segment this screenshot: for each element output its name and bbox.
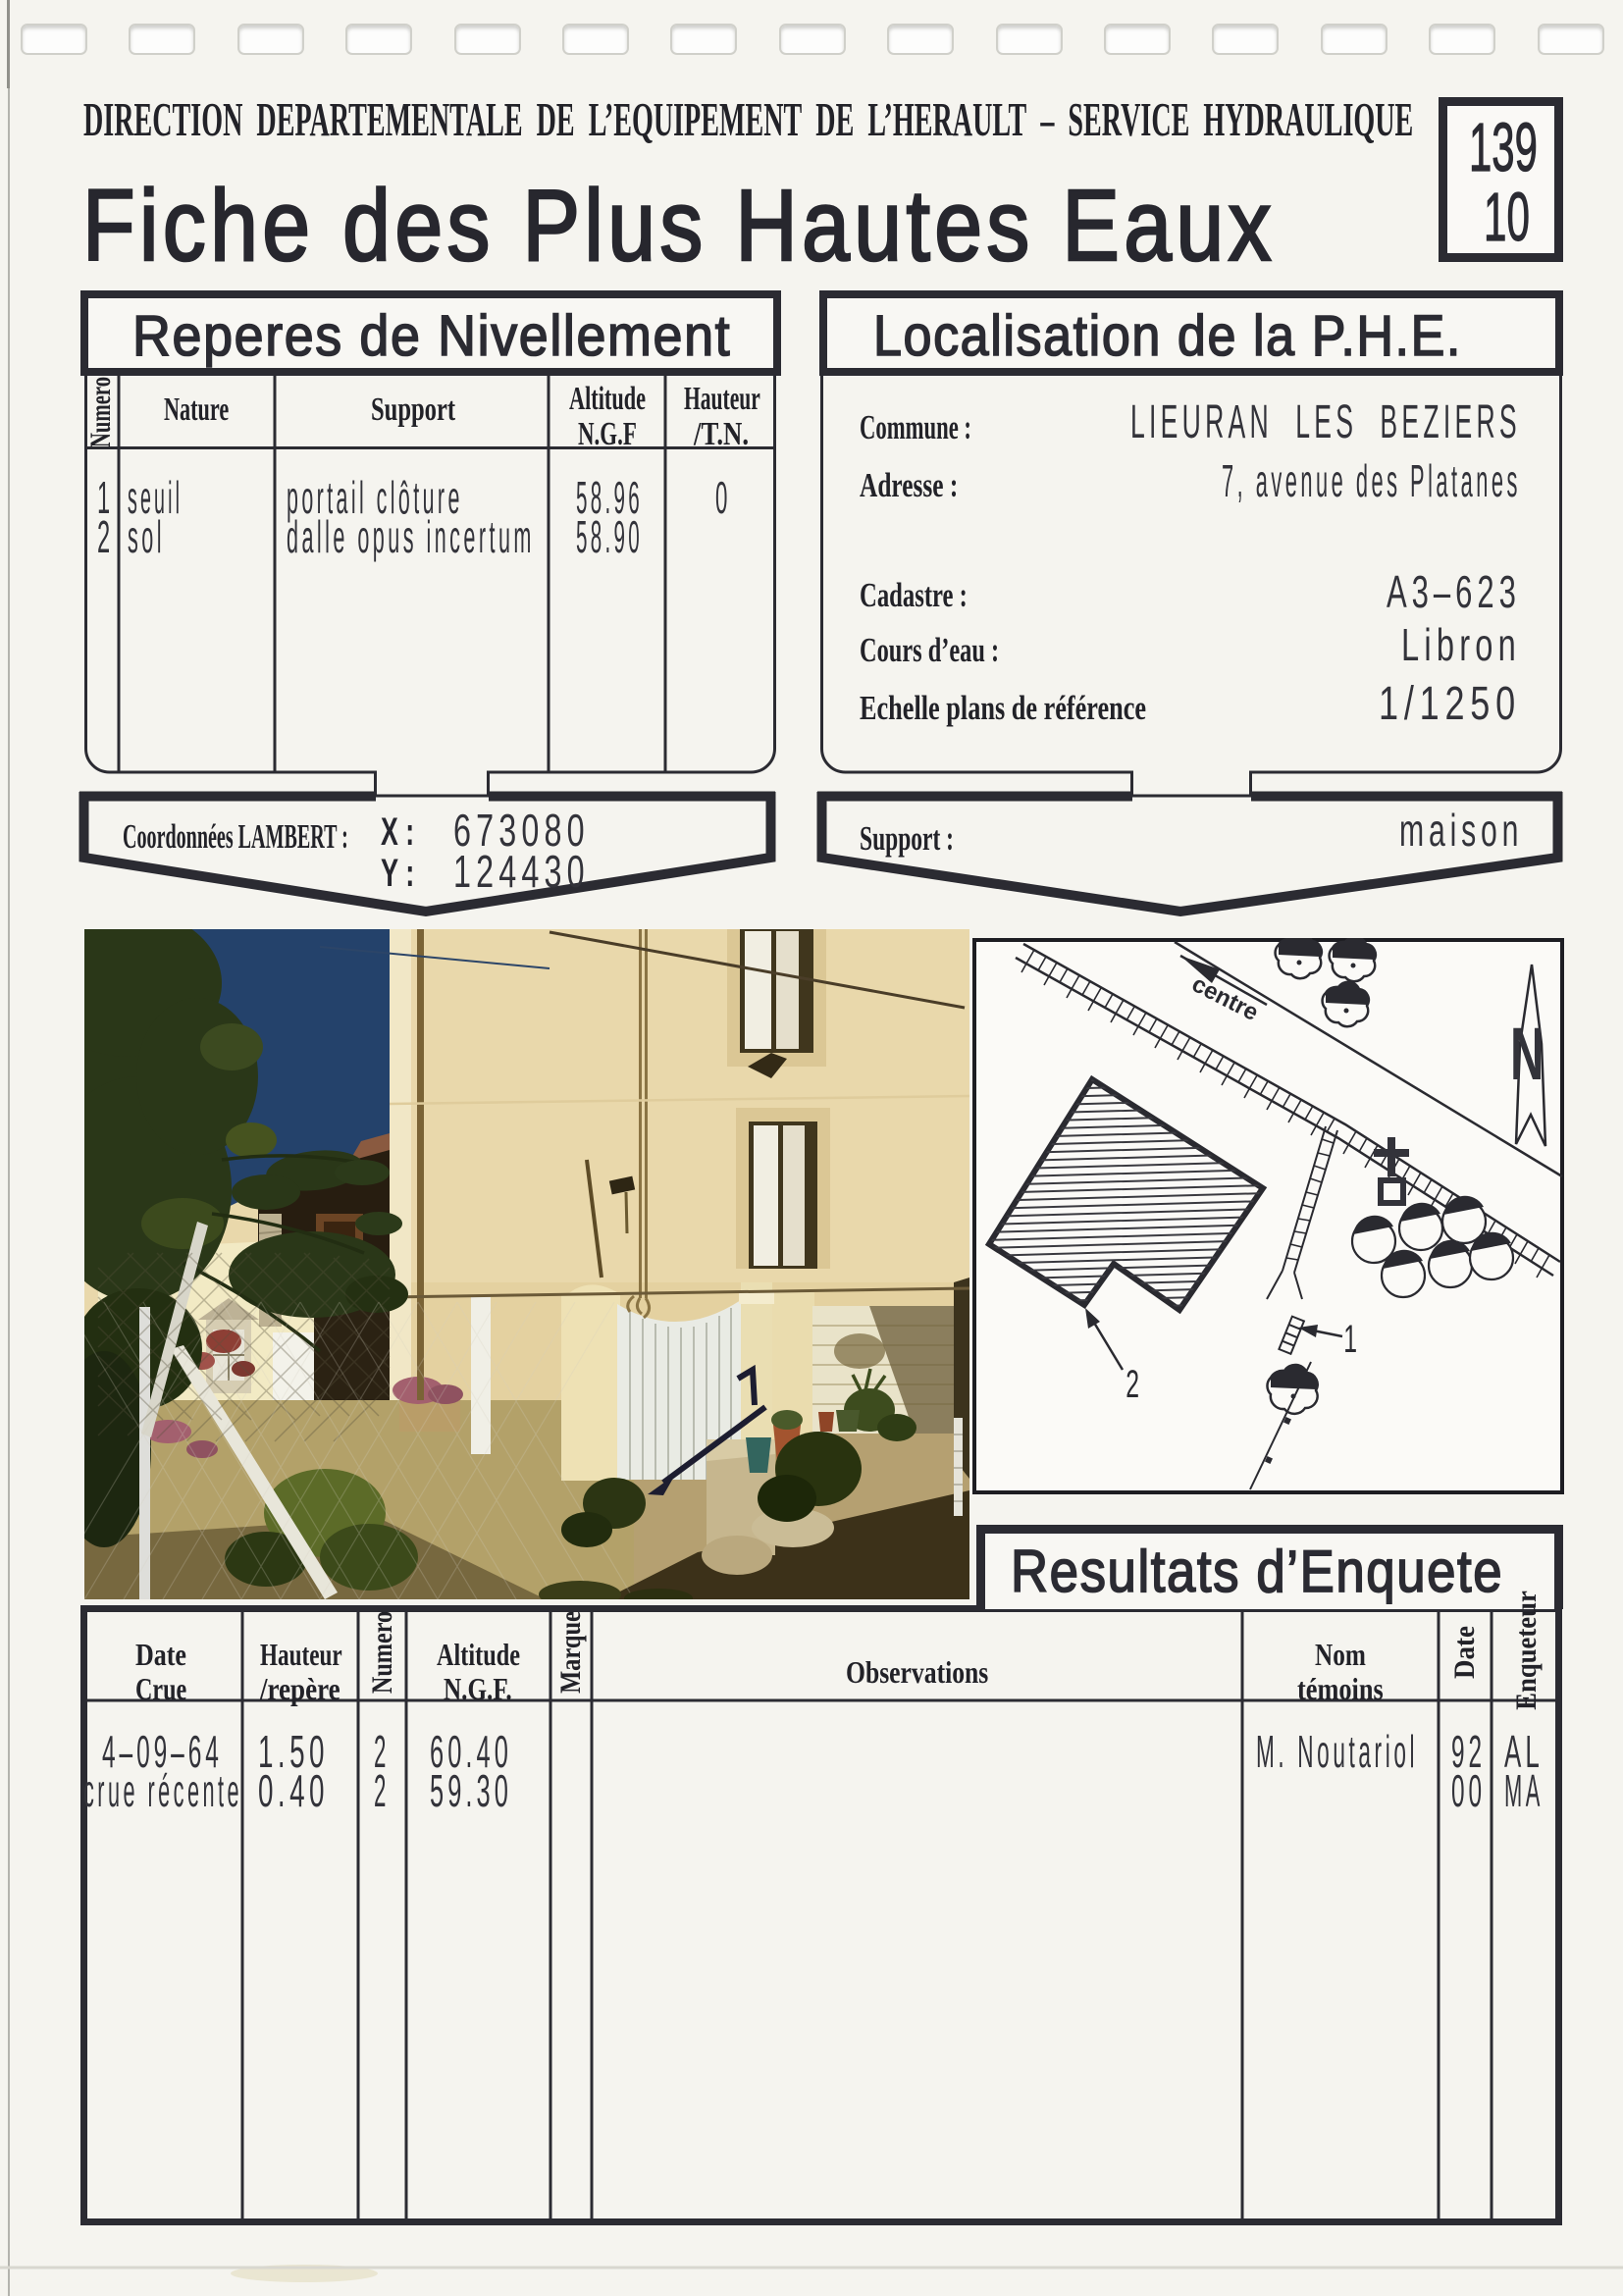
svg-text:2: 2 bbox=[1126, 1363, 1139, 1406]
svg-text:1: 1 bbox=[1343, 1318, 1357, 1361]
svg-text:N: N bbox=[1510, 1013, 1544, 1096]
